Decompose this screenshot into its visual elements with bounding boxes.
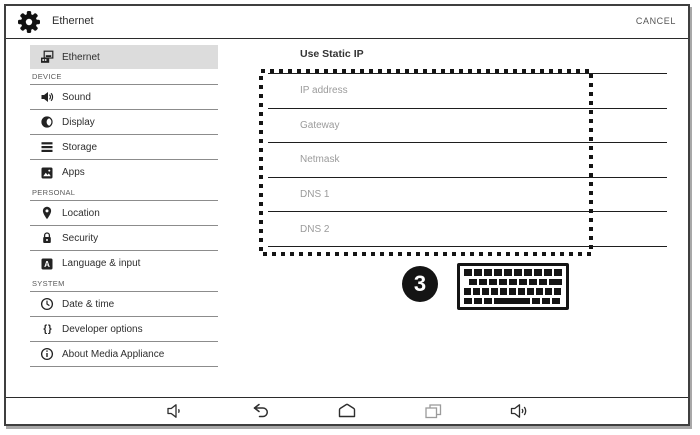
back-icon[interactable]	[250, 400, 272, 422]
static-ip-fields: IP addressGatewayNetmaskDNS 1DNS 2	[268, 73, 667, 247]
field-netmask[interactable]: Netmask	[268, 143, 667, 178]
field-dns-1[interactable]: DNS 1	[268, 178, 667, 213]
field-ip-address[interactable]: IP address	[268, 74, 667, 109]
keyboard-icon	[457, 263, 569, 310]
storage-bars-icon	[40, 140, 54, 154]
volume-up-icon[interactable]	[508, 400, 530, 422]
app-window: Ethernet CANCEL EthernetDEVICESoundDispl…	[4, 4, 690, 426]
cancel-button[interactable]: CANCEL	[636, 16, 676, 26]
location-pin-icon	[40, 206, 54, 220]
info-icon	[40, 347, 54, 361]
field-gateway[interactable]: Gateway	[268, 109, 667, 144]
sidebar-item-security[interactable]: Security	[30, 226, 218, 251]
use-static-ip-label[interactable]: Use Static IP	[300, 48, 364, 60]
sidebar-item-sound[interactable]: Sound	[30, 85, 218, 110]
clock-icon	[40, 297, 54, 311]
sidebar-item-ethernet[interactable]: Ethernet	[30, 45, 218, 69]
sidebar-item-label: Developer options	[62, 324, 143, 335]
sidebar-item-label: Date & time	[62, 299, 114, 310]
sidebar-item-language-input[interactable]: ALanguage & input	[30, 251, 218, 276]
sidebar-section-device: DEVICE	[30, 69, 218, 85]
sidebar-item-storage[interactable]: Storage	[30, 135, 218, 160]
lock-icon	[40, 231, 54, 245]
home-icon[interactable]	[336, 400, 358, 422]
field-placeholder: Gateway	[268, 120, 339, 131]
field-placeholder: Netmask	[268, 154, 339, 165]
recents-icon[interactable]	[422, 400, 444, 422]
field-placeholder: DNS 2	[268, 224, 329, 235]
speaker-icon	[40, 90, 54, 104]
field-dns-2[interactable]: DNS 2	[268, 212, 667, 247]
sidebar-item-about-media-appliance[interactable]: About Media Appliance	[30, 342, 218, 367]
step-3-badge: 3	[402, 266, 438, 302]
sidebar-item-location[interactable]: Location	[30, 201, 218, 226]
navigation-bar	[6, 398, 688, 424]
sidebar-item-date-time[interactable]: Date & time	[30, 292, 218, 317]
sidebar-section-personal: PERSONAL	[30, 185, 218, 201]
language-a-icon: A	[40, 257, 54, 271]
field-placeholder: DNS 1	[268, 189, 329, 200]
sidebar-item-label: Security	[62, 233, 98, 244]
sidebar-item-label: About Media Appliance	[62, 349, 164, 360]
field-placeholder: IP address	[268, 85, 348, 96]
page-title: Ethernet	[52, 15, 94, 27]
contrast-icon	[40, 115, 54, 129]
sidebar-item-label: Location	[62, 208, 100, 219]
sidebar-item-label: Ethernet	[62, 52, 100, 63]
sidebar-item-label: Storage	[62, 142, 97, 153]
header: Ethernet CANCEL	[6, 6, 688, 39]
sidebar-item-label: Apps	[62, 167, 85, 178]
sidebar-item-apps[interactable]: Apps	[30, 160, 218, 185]
sidebar-item-developer-options[interactable]: { }Developer options	[30, 317, 218, 342]
apps-photo-icon	[40, 166, 54, 180]
step-number: 3	[414, 271, 426, 297]
volume-down-icon[interactable]	[164, 400, 186, 422]
sidebar-item-display[interactable]: Display	[30, 110, 218, 135]
sidebar-item-label: Display	[62, 117, 95, 128]
sidebar-item-label: Sound	[62, 92, 91, 103]
ethernet-icon	[40, 50, 54, 64]
sidebar-section-system: SYSTEM	[30, 276, 218, 292]
gear-icon	[16, 9, 42, 35]
svg-text:A: A	[44, 260, 50, 269]
sidebar: EthernetDEVICESoundDisplayStorageAppsPER…	[30, 38, 218, 367]
sidebar-item-label: Language & input	[62, 258, 140, 269]
braces-icon: { }	[40, 322, 54, 336]
